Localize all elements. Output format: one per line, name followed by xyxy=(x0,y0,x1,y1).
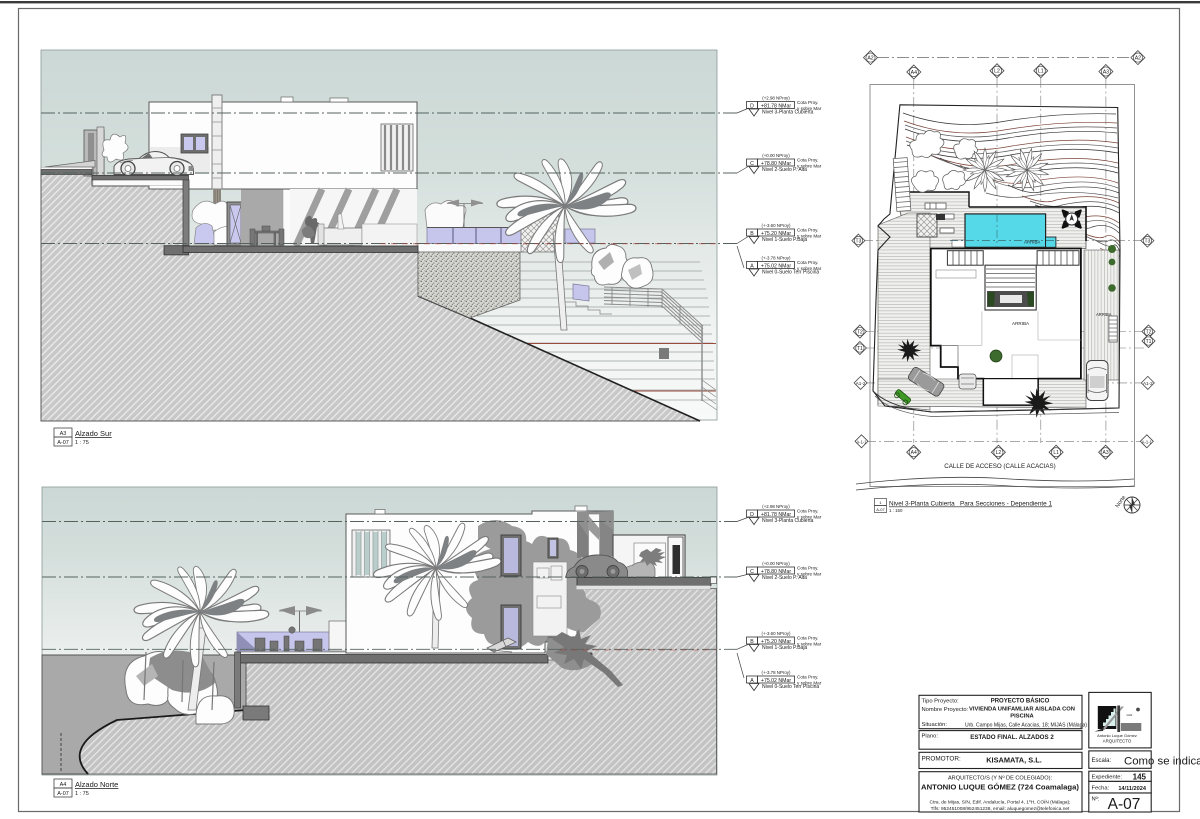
svg-text:C: C xyxy=(750,161,754,167)
svg-text:A-1-1: A-1-1 xyxy=(1142,439,1153,444)
svg-text:A1-2: A1-2 xyxy=(1143,381,1153,386)
svg-text:L2: L2 xyxy=(994,69,1000,75)
svg-text:A4: A4 xyxy=(60,782,67,788)
svg-text:L1: L1 xyxy=(1038,69,1044,75)
svg-text:Cota Proy.: Cota Proy. xyxy=(797,100,818,105)
svg-text:Tipo Proyecto:: Tipo Proyecto: xyxy=(922,699,960,705)
svg-text:Cota Proy.: Cota Proy. xyxy=(797,566,818,571)
svg-text:A-07: A-07 xyxy=(57,791,69,797)
svg-text:Como se indica: Como se indica xyxy=(1124,756,1200,768)
svg-text:ESTADO FINAL. ALZADOS 2: ESTADO FINAL. ALZADOS 2 xyxy=(970,734,1054,741)
svg-text:Nombre Proyecto:: Nombre Proyecto: xyxy=(922,707,969,713)
svg-text:Nivel 1-Suelo P.Baja: Nivel 1-Suelo P.Baja xyxy=(762,237,807,243)
svg-text:+81.78 NMar: +81.78 NMar xyxy=(761,103,791,109)
svg-text:A4: A4 xyxy=(911,70,917,76)
svg-text:(+-3.60 NProy): (+-3.60 NProy) xyxy=(762,631,791,636)
svg-text:A-1-1: A-1-1 xyxy=(856,439,867,444)
svg-text:Nivel 2-Suelo P. Alta: Nivel 2-Suelo P. Alta xyxy=(762,575,807,581)
svg-text:A1-2: A1-2 xyxy=(856,381,866,386)
svg-text:Nivel 3-Planta Cubierta _Para: Nivel 3-Planta Cubierta _Para Secciones … xyxy=(889,501,1053,508)
svg-text:C: C xyxy=(750,569,754,575)
svg-text:ARQUITECTO: ARQUITECTO xyxy=(1103,739,1132,744)
svg-text:(+0.00 NProy): (+0.00 NProy) xyxy=(762,561,790,566)
svg-text:Nivel 2-Suelo P. Alta: Nivel 2-Suelo P. Alta xyxy=(762,167,807,173)
svg-text:(+2.98 NProy): (+2.98 NProy) xyxy=(762,96,790,101)
svg-text:+75.20 NMar: +75.20 NMar xyxy=(761,231,791,237)
svg-text:ARRIBA: ARRIBA xyxy=(1012,321,1030,326)
svg-text:L2: L2 xyxy=(996,450,1002,456)
svg-text:Cota Proy.: Cota Proy. xyxy=(797,636,818,641)
svg-text:Nivel 0-Suelo Terr Piscina: Nivel 0-Suelo Terr Piscina xyxy=(762,684,819,690)
svg-text:Tlfs: 952451008/952451238, ema: Tlfs: 952451008/952451238, email: aluque… xyxy=(931,806,1070,812)
svg-text:145: 145 xyxy=(1133,773,1147,782)
svg-text:A-07: A-07 xyxy=(57,440,69,446)
svg-text:D: D xyxy=(750,512,754,518)
svg-text:Nivel 0-Suelo Terr Piscina: Nivel 0-Suelo Terr Piscina xyxy=(762,270,819,276)
svg-text:A3: A3 xyxy=(1103,450,1109,456)
svg-text:PROMOTOR:: PROMOTOR: xyxy=(922,756,962,763)
svg-text:T3: T3 xyxy=(855,239,861,245)
svg-text:+78.80 NMar: +78.80 NMar xyxy=(761,161,791,167)
svg-text:D: D xyxy=(750,103,754,109)
svg-text:PROYECTO BÁSICO: PROYECTO BÁSICO xyxy=(991,698,1050,705)
svg-text:14/11/2024: 14/11/2024 xyxy=(1118,786,1147,792)
svg-text:(+2.98 NProy): (+2.98 NProy) xyxy=(762,504,790,509)
svg-text:KISAMATA, S.L.: KISAMATA, S.L. xyxy=(986,756,1042,765)
svg-text:Situación:: Situación: xyxy=(922,722,948,728)
svg-text:+75.02 NMar: +75.02 NMar xyxy=(761,263,791,269)
svg-text:Alzado Sur: Alzado Sur xyxy=(75,429,112,438)
svg-text:1 : 75: 1 : 75 xyxy=(75,791,89,797)
svg-text:A-07: A-07 xyxy=(1108,796,1141,813)
svg-text:GGM: GGM xyxy=(1127,714,1133,717)
svg-text:+78.80 NMar: +78.80 NMar xyxy=(761,569,791,575)
svg-text:(+0.00 NProy): (+0.00 NProy) xyxy=(762,153,790,158)
svg-text:T3: T3 xyxy=(1144,239,1150,245)
svg-text:Plano:: Plano: xyxy=(922,734,939,740)
svg-text:A2: A2 xyxy=(867,56,873,62)
svg-text:A3: A3 xyxy=(1103,70,1109,76)
svg-text:L1: L1 xyxy=(1053,450,1059,456)
svg-text:A3: A3 xyxy=(60,431,67,437)
svg-text:A: A xyxy=(750,263,754,269)
svg-text:+81.78 NMar: +81.78 NMar xyxy=(761,512,791,518)
svg-text:(+-3.60 NProy): (+-3.60 NProy) xyxy=(762,223,791,228)
svg-text:Cota Proy.: Cota Proy. xyxy=(797,260,818,265)
svg-text:B: B xyxy=(750,231,754,237)
svg-text:Fecha:: Fecha: xyxy=(1092,786,1110,792)
svg-text:1 : 75: 1 : 75 xyxy=(75,440,89,446)
svg-text:+75.02 NMar: +75.02 NMar xyxy=(761,678,791,684)
svg-text:T1: T1 xyxy=(1146,339,1152,345)
svg-text:A4: A4 xyxy=(911,450,917,456)
svg-text:A: A xyxy=(750,678,754,684)
svg-text:Nivel 1-Suelo P.Baja: Nivel 1-Suelo P.Baja xyxy=(762,645,807,651)
svg-text:Urb. Campo Mijas, Calle Acacia: Urb. Campo Mijas, Calle Acacias, 18; MIJ… xyxy=(965,723,1087,729)
svg-text:A2: A2 xyxy=(1135,56,1141,62)
svg-text:CALLE DE ACCESO (CALLE ACACIAS: CALLE DE ACCESO (CALLE ACACIAS) xyxy=(944,463,1055,470)
svg-text:Nivel 3-Planta Cubierta: Nivel 3-Planta Cubierta xyxy=(762,110,814,116)
svg-text:T1: T1 xyxy=(857,346,863,352)
svg-text:Antonio Luque Gómez: Antonio Luque Gómez xyxy=(1097,733,1137,738)
svg-text:(+-3.78 NProy): (+-3.78 NProy) xyxy=(762,256,791,261)
svg-text:ARRIBA: ARRIBA xyxy=(1024,240,1040,245)
svg-text:VIVIENDA UNIFAMLIAR AISLADA CO: VIVIENDA UNIFAMLIAR AISLADA CON xyxy=(969,707,1075,713)
svg-text:(+-3.78 NProy): (+-3.78 NProy) xyxy=(762,670,791,675)
svg-text:Ctra. de Mijas, S/N, Edif. And: Ctra. de Mijas, S/N, Edif. Andalucía, Po… xyxy=(930,799,1071,806)
svg-text:+75.20 NMar: +75.20 NMar xyxy=(761,639,791,645)
svg-text:Cota Proy.: Cota Proy. xyxy=(797,228,818,233)
svg-text:Nivel 3-Planta Cubierta: Nivel 3-Planta Cubierta xyxy=(762,518,814,524)
svg-text:A-07: A-07 xyxy=(876,507,885,512)
svg-text:ARQUITECTO/S (Y Nº DE COLEGIAD: ARQUITECTO/S (Y Nº DE COLEGIADO): xyxy=(948,775,1053,782)
svg-text:T2: T2 xyxy=(857,330,863,336)
svg-text:Escala:: Escala: xyxy=(1092,758,1112,764)
svg-text:1 : 150: 1 : 150 xyxy=(889,508,903,513)
svg-text:PISCINA: PISCINA xyxy=(1010,714,1034,720)
svg-text:Cota Proy.: Cota Proy. xyxy=(797,675,818,680)
svg-text:Nº:: Nº: xyxy=(1092,796,1100,803)
svg-text:Alzado Norte: Alzado Norte xyxy=(75,780,118,789)
svg-text:Cota Proy.: Cota Proy. xyxy=(797,509,818,514)
svg-text:Cota Proy.: Cota Proy. xyxy=(797,158,818,163)
svg-text:B: B xyxy=(750,639,754,645)
svg-text:ANTONIO LUQUE GÓMEZ (724 Coama: ANTONIO LUQUE GÓMEZ (724 Coamalaga) xyxy=(921,783,1079,792)
svg-text:Expediente:: Expediente: xyxy=(1092,775,1123,781)
